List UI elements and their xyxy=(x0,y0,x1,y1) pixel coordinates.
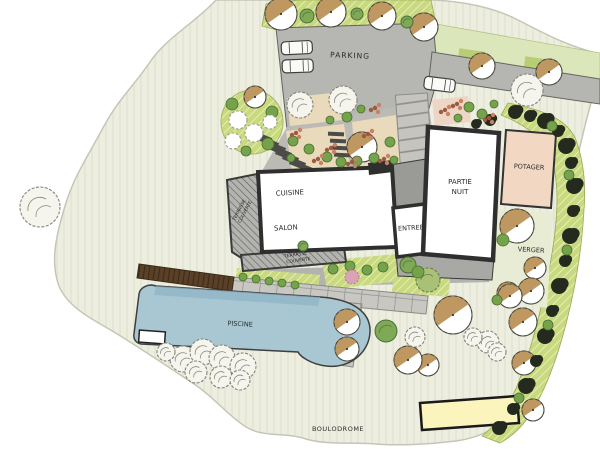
flower-cluster-icon xyxy=(377,103,381,107)
dark-shrub-icon xyxy=(529,110,537,118)
tree-center-dot xyxy=(254,96,256,98)
bush-icon xyxy=(288,136,298,146)
flower-cluster-icon xyxy=(362,134,366,138)
flower-cluster-icon xyxy=(332,150,336,154)
dark-shrub-icon xyxy=(564,255,572,263)
flower-cluster-icon xyxy=(439,110,443,114)
pink-flower-icon xyxy=(345,270,359,284)
flower-cluster-icon xyxy=(373,106,377,110)
dark-shrub-icon xyxy=(564,138,575,149)
bush-icon xyxy=(492,295,502,305)
label-cuisine: CUISINE xyxy=(276,188,305,197)
dark-shrub-icon xyxy=(498,421,508,431)
bush-icon xyxy=(326,116,334,124)
label-boulodrome: BOULODROME xyxy=(312,425,364,433)
label-partie-nuit-line2: NUIT xyxy=(452,188,469,196)
flower-cluster-icon xyxy=(350,160,354,164)
green-tree-icon xyxy=(300,9,314,23)
flower-cluster-icon xyxy=(369,108,373,112)
flower-cluster-icon xyxy=(290,133,294,137)
flower-cluster-icon xyxy=(370,129,374,133)
dark-shrub-icon xyxy=(570,157,578,165)
tree-center-dot xyxy=(346,321,348,323)
flower-cluster-icon xyxy=(451,104,455,108)
bush-icon xyxy=(252,275,260,283)
label-potager: POTAGER xyxy=(514,162,545,172)
tree-center-dot xyxy=(381,15,383,17)
bush-icon xyxy=(362,265,372,275)
flower-cluster-icon xyxy=(312,159,316,163)
flower-cluster-icon xyxy=(443,108,447,112)
bush-icon xyxy=(454,114,462,122)
tree-center-dot xyxy=(452,314,454,316)
bush-icon xyxy=(226,98,238,110)
bush-icon xyxy=(369,153,379,163)
flower-cluster-icon xyxy=(298,128,302,132)
tree-center-dot xyxy=(523,362,525,364)
bush-icon xyxy=(514,393,524,403)
flower-cluster-icon xyxy=(382,157,386,161)
flower-cluster-icon xyxy=(320,154,324,158)
flower-cluster-icon xyxy=(386,154,390,158)
tree-center-dot xyxy=(361,146,363,148)
flower-cluster-icon xyxy=(458,106,462,110)
dark-shrub-icon xyxy=(524,378,535,389)
label-piscine: PISCINE xyxy=(227,319,253,328)
dark-shrub-icon xyxy=(557,278,568,289)
dark-shrub-icon xyxy=(568,228,579,239)
tree-center-dot xyxy=(280,13,282,15)
dark-shrub-icon xyxy=(475,119,482,126)
tree-center-dot xyxy=(481,65,483,67)
flower-cluster-icon xyxy=(376,110,380,114)
green-tree-icon xyxy=(401,16,413,28)
bush-icon xyxy=(241,146,251,156)
tree-center-dot xyxy=(516,225,518,227)
plan-drawing: PARKING CUISINE SALON ENTREE PARTIE NUIT… xyxy=(0,0,600,450)
flower-cluster-icon xyxy=(354,157,358,161)
bush-icon xyxy=(336,157,346,167)
bush-icon xyxy=(464,102,474,112)
bush-icon xyxy=(287,154,295,162)
sketch-tree-icon xyxy=(20,187,60,227)
bush-icon xyxy=(262,138,274,150)
dark-shrub-icon xyxy=(557,125,565,133)
flower-cluster-icon xyxy=(346,162,350,166)
bush-icon xyxy=(342,112,352,122)
flower-cluster-icon xyxy=(316,157,320,161)
dark-shrub-icon xyxy=(551,305,559,313)
label-verger: VERGER xyxy=(518,245,546,254)
tree-center-dot xyxy=(532,409,534,411)
flower-cluster-icon xyxy=(447,105,451,109)
bush-icon xyxy=(562,245,572,255)
flower-cluster-icon xyxy=(319,161,323,165)
pool-bench xyxy=(139,330,166,344)
tree-center-dot xyxy=(346,348,348,350)
bush-icon xyxy=(345,261,355,271)
bush-icon xyxy=(497,234,509,246)
tree-center-dot xyxy=(548,71,550,73)
dark-shrub-icon xyxy=(535,355,543,363)
dark-shrub-icon xyxy=(572,178,583,189)
flower-cluster-icon xyxy=(297,135,301,139)
tree-center-dot xyxy=(427,364,429,366)
bush-icon xyxy=(357,105,365,113)
flower-cluster-icon xyxy=(490,120,494,124)
bed-pink xyxy=(432,96,471,126)
flower-cluster-icon xyxy=(455,102,459,106)
bush-icon xyxy=(490,100,498,108)
white-flower-icon xyxy=(229,111,247,129)
label-partie-nuit-line1: PARTIE xyxy=(448,178,472,186)
tree-center-dot xyxy=(423,26,425,28)
bush-icon xyxy=(265,277,273,285)
bush-icon xyxy=(547,121,557,131)
flower-cluster-icon xyxy=(491,113,495,117)
flower-cluster-icon xyxy=(329,146,333,150)
bush-icon xyxy=(291,281,299,289)
tree-center-dot xyxy=(330,11,332,13)
bush-icon xyxy=(278,279,286,287)
bush-icon xyxy=(378,262,388,272)
flower-cluster-icon xyxy=(446,112,450,116)
bush-icon xyxy=(304,144,314,154)
label-parking: PARKING xyxy=(330,50,370,60)
tree-center-dot xyxy=(522,321,524,323)
bush-icon xyxy=(543,320,553,330)
dark-shrub-icon xyxy=(572,205,580,213)
flower-cluster-icon xyxy=(333,143,337,147)
white-flower-icon xyxy=(263,115,277,129)
flower-cluster-icon xyxy=(366,132,370,136)
tree-center-dot xyxy=(509,295,511,297)
flower-cluster-icon xyxy=(378,159,382,163)
green-tree-icon xyxy=(375,320,397,342)
tree-center-dot xyxy=(407,359,409,361)
bush-icon xyxy=(328,264,338,274)
flower-cluster-icon xyxy=(294,131,298,135)
bush-icon xyxy=(390,156,398,164)
bush-icon xyxy=(385,137,395,147)
label-salon: SALON xyxy=(274,223,298,232)
flower-cluster-icon xyxy=(459,99,463,103)
flower-cluster-icon xyxy=(353,164,357,168)
tree-center-dot xyxy=(530,290,532,292)
bush-icon xyxy=(239,273,247,281)
car-icon xyxy=(282,59,313,73)
tree-center-dot xyxy=(534,267,536,269)
landscape-plan-canvas: PARKING CUISINE SALON ENTREE PARTIE NUIT… xyxy=(0,0,600,450)
flower-cluster-icon xyxy=(385,161,389,165)
dark-shrub-icon xyxy=(514,105,524,115)
bush-icon xyxy=(477,109,487,119)
white-flower-icon xyxy=(245,124,263,142)
flower-cluster-icon xyxy=(369,136,373,140)
flower-cluster-icon xyxy=(325,148,329,152)
car-icon xyxy=(281,40,313,55)
flower-cluster-icon xyxy=(487,116,491,120)
room-living-kitchen xyxy=(258,167,397,252)
bush-icon xyxy=(564,170,574,180)
white-flower-icon xyxy=(225,133,241,149)
label-entree: ENTREE xyxy=(398,223,424,232)
green-tree-icon xyxy=(298,241,308,251)
green-tree-icon xyxy=(351,8,363,20)
flower-cluster-icon xyxy=(483,118,487,122)
bush-icon xyxy=(412,266,424,278)
dark-shrub-icon xyxy=(512,403,520,411)
